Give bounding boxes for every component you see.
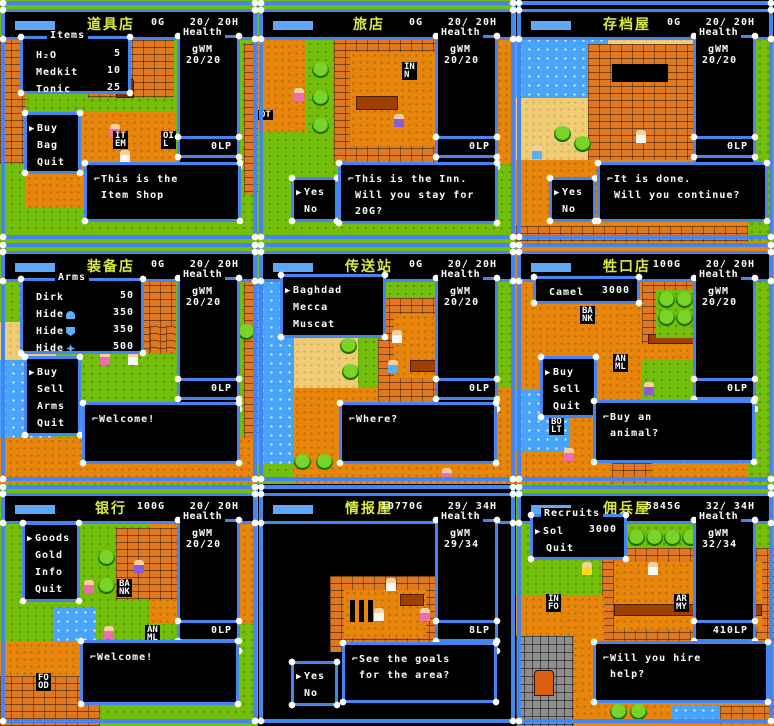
magic-meter <box>531 21 571 30</box>
panel-teleport-station: 传送站 0G 20/ 20H gWM 20/20 Health 0LP ▶Bag… <box>258 242 516 484</box>
cursor-icon: ▶ <box>296 186 304 201</box>
dialog-line: ⌐Where? <box>349 413 494 429</box>
items-window: Items H₂O5 Medkit10 Tonic25 <box>20 36 131 94</box>
player-tag: gWM <box>450 528 471 539</box>
health-label: Health <box>180 27 225 38</box>
magic-meter <box>273 263 313 272</box>
helmet-icon <box>66 311 75 319</box>
cursor-icon: ▶ <box>29 122 37 137</box>
menu-item-yes[interactable]: ▶Yes <box>552 185 593 202</box>
panel-arms-shop: 装备店 0G 20/ 20H gWM 20/20 Health 0LP Arms… <box>0 242 258 484</box>
health-label: Health <box>180 511 225 522</box>
menu-item-arms[interactable]: Arms <box>27 399 78 416</box>
dialog-line: help? <box>603 668 766 684</box>
cursor-icon: ▶ <box>554 186 562 201</box>
dialog-box: ⌐This is the Inn. Will you stay for 20G? <box>338 162 498 224</box>
player-tag: gWM <box>192 44 213 55</box>
dialog-line: ⌐It is done. <box>607 173 765 189</box>
items-label: Items <box>47 30 88 41</box>
health-label: Health <box>180 269 225 280</box>
player-tag: gWM <box>708 286 729 297</box>
cursor-icon: ▶ <box>545 366 553 381</box>
panel-recruit-house: INFO ARMY 佣兵屋 5845G 32/ 34H gWM 32/34 He… <box>516 484 774 726</box>
health-label: Health <box>696 511 741 522</box>
dialog-line: Will you continue? <box>607 189 765 205</box>
lp-display: 0LP <box>177 136 240 158</box>
player-tag: gWM <box>708 528 729 539</box>
magic-meter <box>15 505 55 514</box>
dialog-line: Item Shop <box>94 189 238 205</box>
gold-amount: 5845G <box>599 501 681 512</box>
gold-amount: 0G <box>599 17 681 28</box>
dialog-line: 20G? <box>348 205 495 221</box>
player-tag: gWM <box>708 44 729 55</box>
dest-mecca[interactable]: Mecca <box>283 300 383 317</box>
menu-item-yes[interactable]: ▶Yes <box>294 669 335 686</box>
armor-icon <box>66 344 75 353</box>
list-item[interactable]: Tonic25 <box>23 81 128 98</box>
cursor-icon: ▶ <box>535 525 543 539</box>
gold-amount: 100G <box>83 501 165 512</box>
menu-item-quit[interactable]: Quit <box>533 540 624 557</box>
dialog-line: ⌐This is the Inn. <box>348 173 495 189</box>
command-menu: ▶Buy Sell Arms Quit <box>24 356 81 436</box>
health-value: 20/20 <box>444 55 479 66</box>
magic-meter <box>15 263 55 272</box>
lp-display: 0LP <box>435 378 498 400</box>
recruits-label: Recruits <box>541 508 603 519</box>
panel-animal-shop: BANK ANML BOLT 牲口店 100G 20/ 20H gWM 20/2… <box>516 242 774 484</box>
gold-amount: 0G <box>341 17 423 28</box>
panel-item-shop: ITEM OIL 道具店 0G 20/ 20H gWM 20/20 Health… <box>0 0 258 242</box>
recruits-window: Recruits ▶Sol3000 Quit <box>530 514 627 560</box>
health-value: 20/20 <box>186 539 221 550</box>
dest-muscat[interactable]: Muscat <box>283 317 383 334</box>
screen-grid: ITEM OIL 道具店 0G 20/ 20H gWM 20/20 Health… <box>0 0 774 726</box>
menu-item-no[interactable]: No <box>294 202 335 219</box>
menu-item-gold[interactable]: Gold <box>25 548 77 565</box>
arms-window: Arms Dirk50 Hide350 Hide350 Hide500 <box>20 278 144 354</box>
lp-display: 0LP <box>693 136 756 158</box>
list-item[interactable]: H₂O5 <box>23 47 128 64</box>
menu-item-quit[interactable]: Quit <box>25 582 77 599</box>
gold-amount: 0G <box>83 259 165 270</box>
cursor-icon: ▶ <box>296 670 304 685</box>
menu-item-sell[interactable]: Sell <box>543 382 594 399</box>
player-tag: gWM <box>450 44 471 55</box>
shield-icon <box>66 327 75 336</box>
panel-info-house: 情报屋 10770G 29/ 34H gWM 29/34 Health 8LP … <box>258 484 516 726</box>
gold-amount: 0G <box>83 17 165 28</box>
menu-item-quit[interactable]: Quit <box>543 399 594 416</box>
dialog-line: animal? <box>603 427 752 443</box>
health-value: 20/20 <box>702 55 737 66</box>
yesno-menu: ▶Yes No <box>291 177 338 222</box>
magic-meter <box>531 263 571 272</box>
dialog-box: ⌐It is done. Will you continue? <box>597 162 768 222</box>
lp-display: 0LP <box>177 378 240 400</box>
menu-item-quit[interactable]: Quit <box>27 155 78 172</box>
menu-item-no[interactable]: No <box>552 202 593 219</box>
cursor-icon: ▶ <box>285 284 293 299</box>
panel-bank: BANK ANML FOOD 银行 100G 20/ 20H gWM 20/20… <box>0 484 258 726</box>
dialog-box: ⌐Welcome! <box>80 640 239 705</box>
yesno-menu: ▶Yes No <box>291 661 338 706</box>
dialog-line: ⌐Welcome! <box>90 651 236 667</box>
dest-baghdad[interactable]: ▶Baghdad <box>283 283 383 300</box>
panel-save-house: 存档屋 0G 20/ 20H gWM 20/20 Health 0LP ▶Yes… <box>516 0 774 242</box>
menu-item-buy[interactable]: ▶Buy <box>543 365 594 382</box>
arms-label: Arms <box>55 272 89 283</box>
player-tag: gWM <box>450 286 471 297</box>
command-menu: ▶Buy Bag Quit <box>24 112 81 174</box>
health-label: Health <box>696 27 741 38</box>
health-value: 20/20 <box>186 297 221 308</box>
dialog-line: ⌐This is the <box>94 173 238 189</box>
magic-meter <box>273 21 313 30</box>
goods-window: Camel3000 <box>533 276 640 304</box>
dialog-line: Will you stay for <box>348 189 495 205</box>
player-tag: gWM <box>192 286 213 297</box>
list-item[interactable]: Medkit10 <box>23 64 128 81</box>
magic-meter <box>273 505 313 514</box>
dialog-box: ⌐See the goals for the area? <box>342 642 497 703</box>
menu-item-goods[interactable]: ▶Goods <box>25 531 77 548</box>
dialog-line: ⌐Welcome! <box>92 413 237 429</box>
dialog-line: ⌐See the goals <box>352 653 494 669</box>
list-item[interactable]: ▶Sol3000 <box>533 523 624 540</box>
lp-display: 0LP <box>435 136 498 158</box>
menu-item-bag[interactable]: Bag <box>27 138 78 155</box>
dialog-box: ⌐Where? <box>339 402 497 464</box>
panel-inn: INN OT 旅店 0G 20/ 20H gWM 20/20 Health 0L… <box>258 0 516 242</box>
health-value: 29/34 <box>444 539 479 550</box>
dialog-line: for the area? <box>352 669 494 685</box>
cursor-icon: ▶ <box>29 366 37 381</box>
list-item[interactable]: Hide350 <box>23 306 141 323</box>
health-value: 20/20 <box>186 55 221 66</box>
destination-menu: ▶Baghdad Mecca Muscat <box>280 274 386 338</box>
health-value: 20/20 <box>444 297 479 308</box>
cursor-icon: ▶ <box>27 532 35 547</box>
yesno-menu: ▶Yes No <box>549 177 596 222</box>
list-item[interactable]: Camel3000 <box>536 284 637 301</box>
dialog-box: ⌐Welcome! <box>82 402 240 464</box>
menu-item-buy[interactable]: ▶Buy <box>27 365 78 382</box>
command-menu: ▶Buy Sell Quit <box>540 356 597 418</box>
lp-display: 0LP <box>693 378 756 400</box>
dialog-line: ⌐Will you hire <box>603 652 766 668</box>
health-value: 32/34 <box>702 539 737 550</box>
health-value: 20/20 <box>702 297 737 308</box>
dialog-line: ⌐Buy an <box>603 411 752 427</box>
health-label: Health <box>696 269 741 280</box>
list-item[interactable]: Hide500 <box>23 340 141 357</box>
dialog-box: ⌐Will you hire help? <box>593 641 769 703</box>
dialog-box: ⌐Buy an animal? <box>593 400 755 463</box>
player-tag: gWM <box>192 528 213 539</box>
health-label: Health <box>438 269 483 280</box>
health-label: Health <box>438 511 483 522</box>
gold-amount: 100G <box>599 259 681 270</box>
lp-display: 8LP <box>435 620 498 642</box>
lp-display: 0LP <box>177 620 240 642</box>
menu-item-quit[interactable]: Quit <box>27 416 78 433</box>
dialog-box: ⌐This is the Item Shop <box>84 162 241 222</box>
menu-item-buy[interactable]: ▶Buy <box>27 121 78 138</box>
menu-item-no[interactable]: No <box>294 686 335 703</box>
lp-display: 410LP <box>693 620 756 642</box>
menu-item-info[interactable]: Info <box>25 565 77 582</box>
list-item[interactable]: Dirk50 <box>23 289 141 306</box>
health-label: Health <box>438 27 483 38</box>
command-menu: ▶Goods Gold Info Quit <box>22 522 80 602</box>
gold-amount: 0G <box>341 259 423 270</box>
magic-meter <box>15 21 55 30</box>
list-item[interactable]: Hide350 <box>23 323 141 340</box>
gold-amount: 10770G <box>341 501 423 512</box>
menu-item-yes[interactable]: ▶Yes <box>294 185 335 202</box>
menu-item-sell[interactable]: Sell <box>27 382 78 399</box>
